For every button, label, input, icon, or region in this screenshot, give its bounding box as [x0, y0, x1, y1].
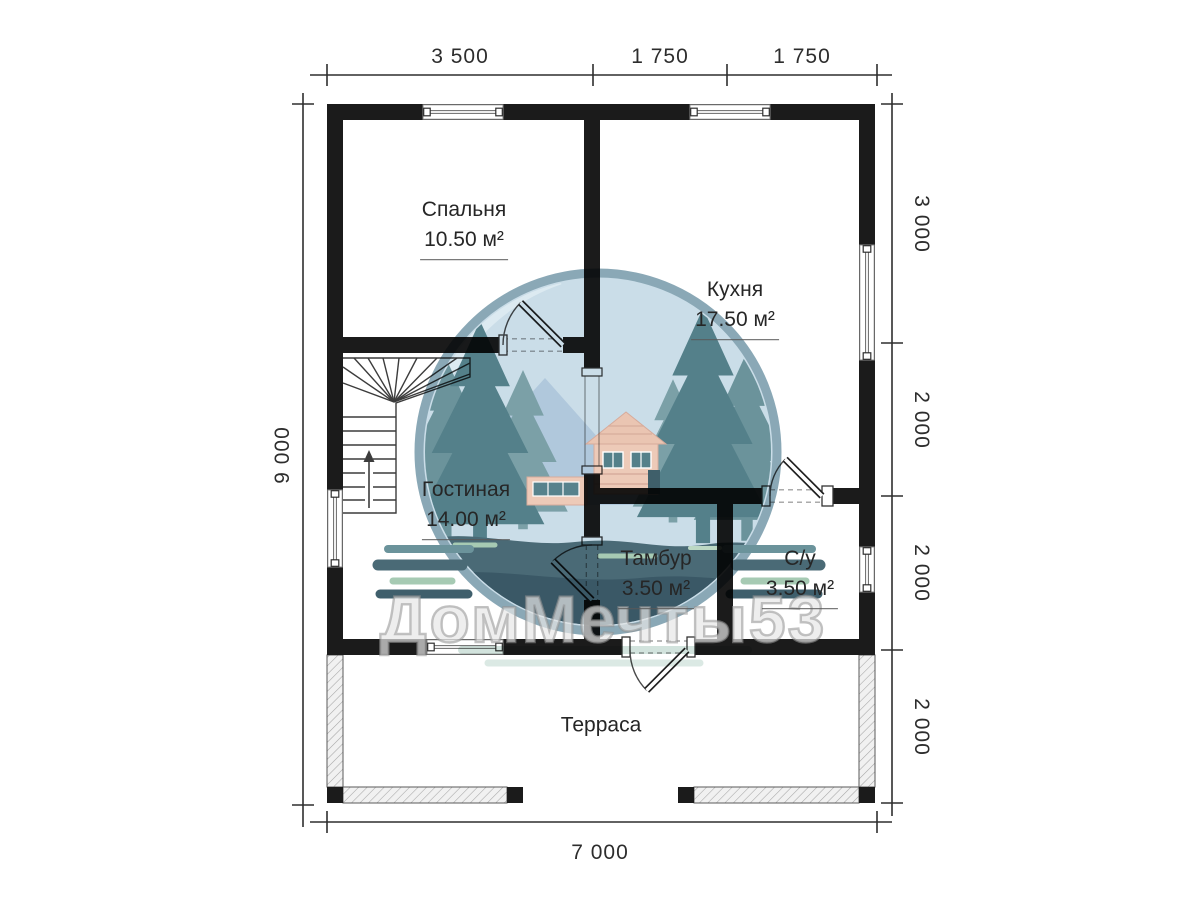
room-label-kitchen: Кухня 17.50 м² [691, 276, 779, 340]
floor-plan-page: ДомМечты53 3 500 1 750 1 750 7 000 9 000… [0, 0, 1200, 900]
dim-right-4: 2 000 [909, 698, 933, 756]
room-name-living: Гостиная [422, 476, 510, 503]
room-name-kitchen: Кухня [691, 276, 779, 303]
room-area-kitchen: 17.50 м² [691, 307, 779, 340]
room-area-bathroom: 3.50 м² [762, 576, 838, 609]
room-label-bedroom: Спальня 10.50 м² [420, 196, 508, 260]
dim-top-2: 1 750 [631, 45, 689, 69]
dim-right-2: 2 000 [909, 391, 933, 449]
room-area-bedroom: 10.50 м² [420, 227, 508, 260]
watermark-logo [0, 0, 1200, 900]
watermark-text: ДомМечты53 [380, 581, 827, 657]
room-area-living: 14.00 м² [422, 507, 510, 540]
room-label-vestibule: Тамбур 3.50 м² [618, 545, 694, 609]
room-area-vestibule: 3.50 м² [618, 576, 694, 609]
room-label-bathroom: С/у 3.50 м² [762, 545, 838, 609]
dim-top-1: 3 500 [431, 45, 489, 69]
dim-left: 9 000 [271, 426, 295, 484]
dim-bottom: 7 000 [571, 841, 629, 865]
room-name-bedroom: Спальня [420, 196, 508, 223]
room-name-vestibule: Тамбур [618, 545, 694, 572]
room-name-bathroom: С/у [762, 545, 838, 572]
dim-right-3: 2 000 [909, 544, 933, 602]
dim-right-1: 3 000 [909, 195, 933, 253]
room-label-living: Гостиная 14.00 м² [422, 476, 510, 540]
dim-top-3: 1 750 [773, 45, 831, 69]
room-name-terrace: Терраса [561, 711, 642, 738]
room-label-terrace: Терраса [561, 711, 642, 738]
